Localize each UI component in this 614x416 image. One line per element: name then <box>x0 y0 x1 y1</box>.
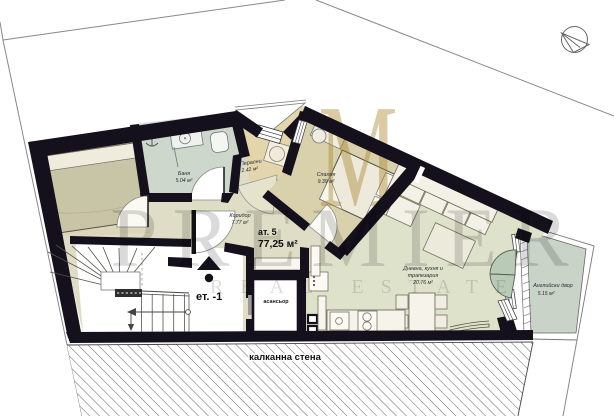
svg-text:трапезария: трапезария <box>408 273 439 279</box>
svg-text:калканна стена: калканна стена <box>249 352 321 363</box>
svg-text:REAL ESTATE: REAL ESTATE <box>210 276 524 298</box>
svg-text:Английски двор: Английски двор <box>532 282 573 289</box>
svg-text:ат. 5: ат. 5 <box>258 227 277 237</box>
svg-text:ет. -1: ет. -1 <box>196 291 222 303</box>
svg-text:асансьор: асансьор <box>263 299 289 305</box>
svg-text:20.76 м²: 20.76 м² <box>412 280 433 286</box>
svg-text:Спалня: Спалня <box>317 172 336 178</box>
svg-text:9.39 м²: 9.39 м² <box>318 179 335 185</box>
svg-text:5.15 м²: 5.15 м² <box>538 291 555 297</box>
svg-text:7.77 м²: 7.77 м² <box>232 220 249 226</box>
svg-text:5.04 м²: 5.04 м² <box>176 178 193 184</box>
svg-text:PREMIER: PREMIER <box>110 191 583 285</box>
svg-text:Дневна, кухня и: Дневна, кухня и <box>402 266 443 272</box>
svg-text:Коридор: Коридор <box>229 213 250 219</box>
svg-text:Баня: Баня <box>178 171 190 177</box>
svg-text:77,25 м²: 77,25 м² <box>258 239 298 250</box>
